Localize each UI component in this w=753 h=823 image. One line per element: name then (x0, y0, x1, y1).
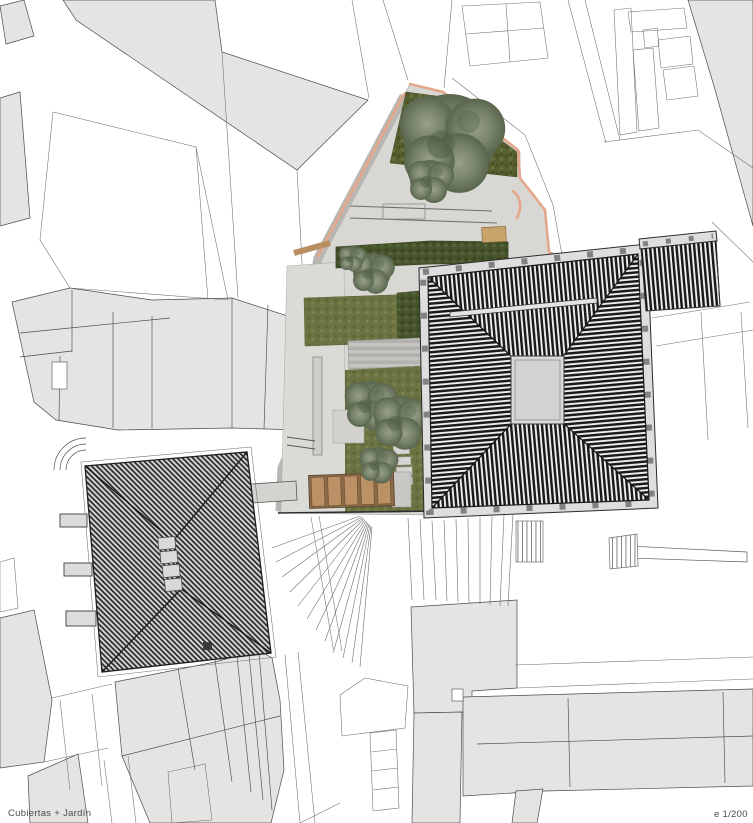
wood-deck (482, 226, 507, 242)
drawing-sheet: Cubiertas + Jardín e 1/200 (0, 0, 753, 823)
roof-vent (203, 642, 212, 650)
secondary-building-roof (60, 447, 276, 677)
chimney (64, 563, 92, 576)
chimney (66, 611, 96, 626)
vertical-hedge (397, 291, 421, 343)
south-parcel-block (115, 652, 284, 823)
link-walkway (251, 481, 297, 503)
site-plan-drawing: Cubiertas + Jardín e 1/200 (0, 0, 753, 823)
long-wall-element (629, 546, 747, 562)
chimney (60, 514, 87, 527)
northeast-wedge (688, 0, 753, 226)
main-building-roof (419, 231, 720, 518)
annex-roof (639, 231, 720, 311)
terrace-paving (348, 338, 421, 369)
low-wall (313, 357, 322, 455)
southeast-band (463, 689, 753, 796)
caption: Cubiertas + Jardín (8, 808, 91, 819)
west-parcel-cluster (12, 288, 306, 430)
scale-label: e 1/200 (714, 809, 748, 820)
gravel-strip (392, 472, 411, 507)
